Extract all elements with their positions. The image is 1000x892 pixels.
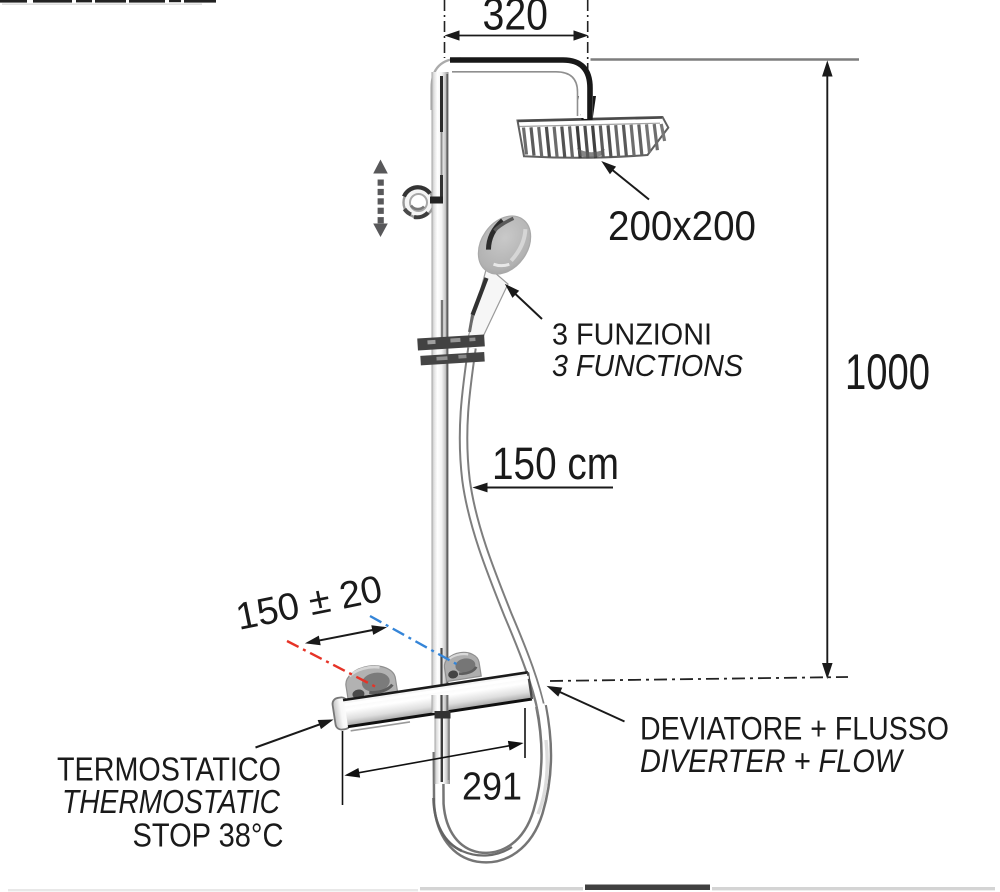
svg-text:THERMOSTATIC: THERMOSTATIC: [62, 783, 281, 820]
svg-text:DIVERTER + FLOW: DIVERTER + FLOW: [640, 743, 905, 779]
svg-text:3 FUNCTIONS: 3 FUNCTIONS: [552, 348, 743, 383]
svg-text:TERMOSTATICO: TERMOSTATICO: [57, 751, 281, 788]
svg-text:3 FUNZIONI: 3 FUNZIONI: [552, 317, 712, 352]
svg-text:291: 291: [462, 766, 522, 809]
svg-text:STOP 38°C: STOP 38°C: [133, 817, 284, 854]
svg-text:200x200: 200x200: [608, 202, 756, 249]
svg-text:DEVIATORE + FLUSSO: DEVIATORE + FLUSSO: [640, 711, 949, 747]
svg-text:1000: 1000: [845, 343, 930, 400]
svg-text:150 cm: 150 cm: [492, 438, 619, 489]
svg-text:320: 320: [483, 0, 549, 40]
